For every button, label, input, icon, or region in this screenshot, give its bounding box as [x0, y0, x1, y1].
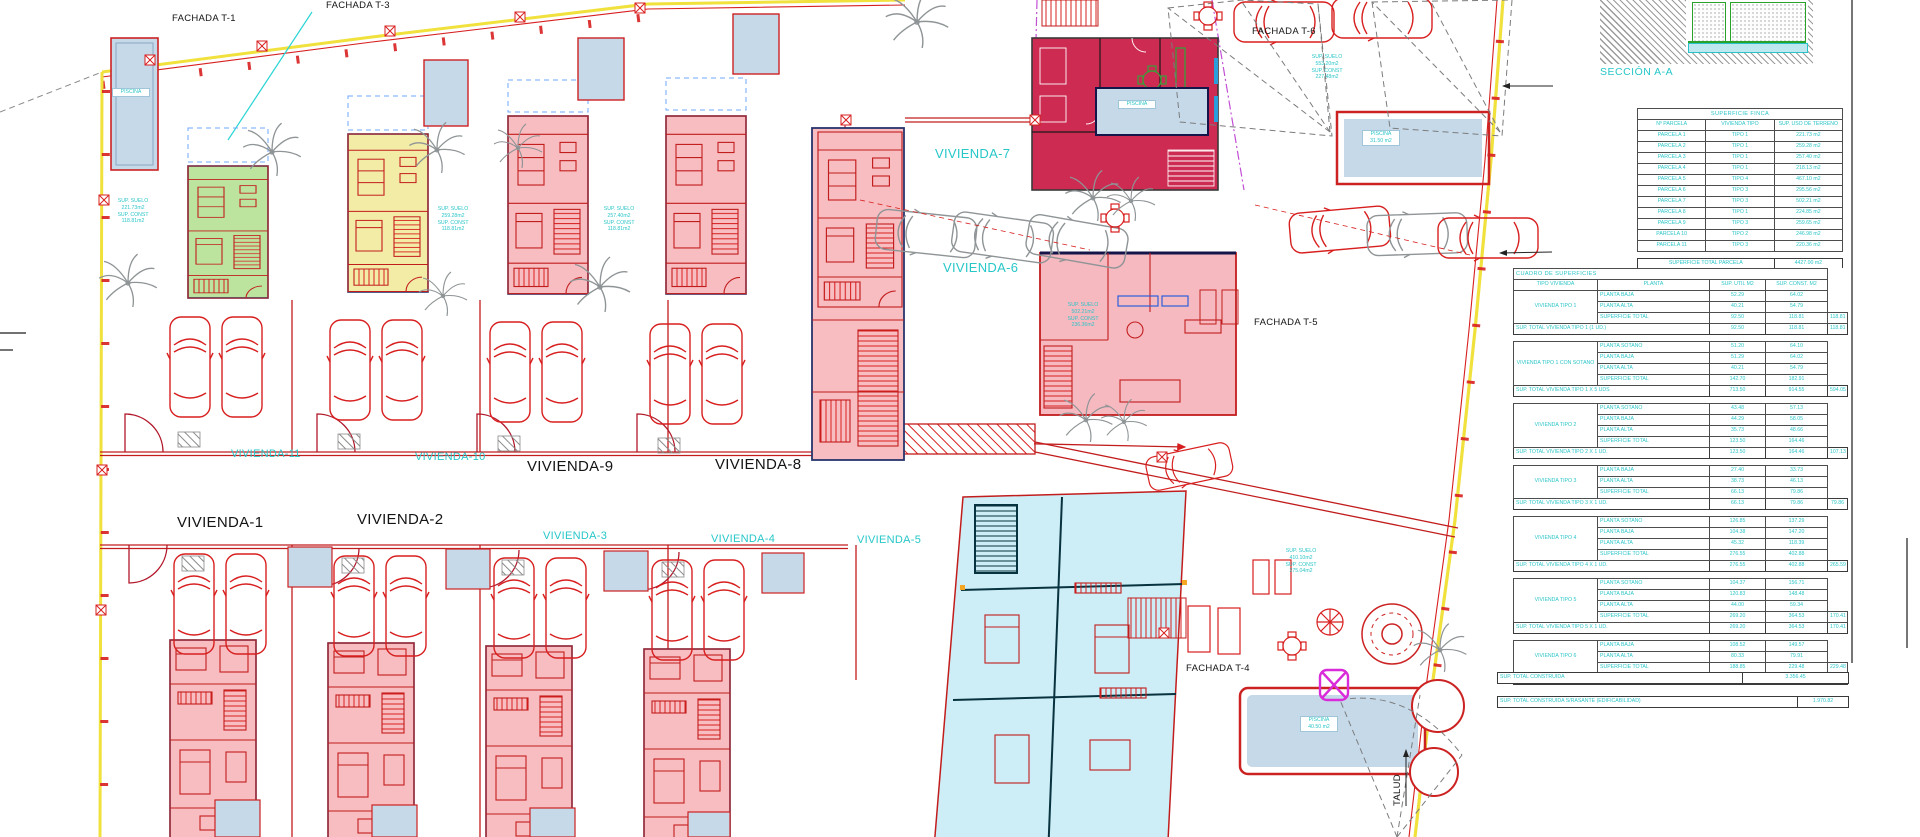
table-cell: 259.65 m2 [1774, 219, 1842, 230]
table-cell: 79.86 [1766, 499, 1828, 510]
table-row: VIVIENDA TIPO 1 CON SOTANOPLANTA SOTANO5… [1514, 342, 1848, 353]
table-row: VIVIENDA TIPO 3PLANTA BAJA27.4033.73 [1514, 466, 1848, 477]
column-header: Nº PARCELA [1638, 120, 1706, 131]
table-cell: TIPO 3 [1706, 186, 1774, 197]
planta-cell: SUPERFICIE TOTAL [1598, 313, 1710, 324]
planta-cell: SUPERFICIE TOTAL [1598, 488, 1710, 499]
plan-annotation: SUP. SUELO553.20m2SUP. CONST227.48m2 [1298, 54, 1356, 81]
label-v11: VIVIENDA-11 [231, 448, 301, 460]
annotation-line: SUP. SUELO [1054, 302, 1112, 309]
table-cell: 402.88 [1766, 561, 1828, 572]
table-cell: 246.98 m2 [1774, 230, 1842, 241]
table-row: PARCELA 7TIPO 3502.21 m2 [1638, 197, 1843, 208]
concrete-block [1730, 2, 1806, 42]
table-cell: 120.83 [1710, 590, 1766, 601]
annotation-line: SUP. SUELO [1272, 548, 1330, 555]
label-v1: VIVIENDA-1 [177, 514, 263, 531]
edif-cell [1828, 652, 1848, 663]
plan-annotation: PISCINA40.50 m2 [1300, 716, 1338, 732]
unit-t5 [1040, 253, 1238, 415]
table-cell: TIPO 1 [1706, 164, 1774, 175]
planta-cell: SUPERFICIE TOTAL [1598, 437, 1710, 448]
annotation-line: PISCINA [114, 89, 148, 96]
table-spacer [1514, 335, 1848, 342]
total-label: SUP. TOTAL VIVIENDA TIPO 1 X 5 UDS [1514, 386, 1710, 397]
label-fachada-t6: FACHADA T-6 [1252, 26, 1316, 37]
table-row: VIVIENDA TIPO 4PLANTA SOTANO126.85137.29 [1514, 517, 1848, 528]
label-fachada-t3: FACHADA T-3 [326, 0, 390, 11]
label-v6: VIVIENDA-6 [943, 260, 1018, 275]
table-row: PARCELA 8TIPO 1224.85 m2 [1638, 208, 1843, 219]
edif-cell [1828, 539, 1848, 550]
table-cell: PARCELA 10 [1638, 230, 1706, 241]
table-cell: PARCELA 2 [1638, 142, 1706, 153]
table-cell: 269.20 [1710, 612, 1766, 623]
table-cell: 40.21 [1710, 364, 1766, 375]
table-row: VIVIENDA TIPO 5PLANTA SOTANO104.37156.71 [1514, 579, 1848, 590]
edif-cell [1828, 353, 1848, 364]
table-cell: 79.86 [1766, 488, 1828, 499]
table-cell: 57.13 [1766, 404, 1828, 415]
edif-cell [1828, 291, 1848, 302]
tipo-cell: VIVIENDA TIPO 4 [1514, 517, 1598, 561]
table-cell: 64.02 [1766, 353, 1828, 364]
total-label: SUP. TOTAL VIVIENDA TIPO 5 X 1 UD. [1514, 623, 1710, 634]
edif-cell [1828, 415, 1848, 426]
annotation-line: SUP. CONST [1054, 316, 1112, 323]
summary-row-table: SUP. TOTAL CONSTRUIDA3.356.45 [1497, 672, 1849, 684]
table-cell [1514, 685, 1848, 692]
table-header-row: Nº PARCELAVIVIENDA TIPOSUP. USO DE TERRE… [1638, 120, 1843, 131]
table-total-row: SUP. TOTAL VIVIENDA TIPO 1 X 5 UDS713.50… [1514, 386, 1848, 397]
planta-cell: PLANTA BAJA [1598, 528, 1710, 539]
base-layer [1688, 43, 1808, 53]
table-title-row: CUADRO DE SUPERFICIES [1514, 269, 1848, 280]
table-cell [1514, 510, 1848, 517]
table-cell: 59.34 [1766, 601, 1828, 612]
tipo-cell: VIVIENDA TIPO 6 [1514, 641, 1598, 674]
tipo-cell: VIVIENDA TIPO 5 [1514, 579, 1598, 623]
table-total-row: SUP. TOTAL VIVIENDA TIPO 5 X 1 UD.269.20… [1514, 623, 1848, 634]
column-header: VIVIENDA TIPO [1706, 120, 1774, 131]
table-row: PARCELA 2TIPO 1259.28 m2 [1638, 142, 1843, 153]
planta-cell: PLANTA ALTA [1598, 426, 1710, 437]
table-cell: 713.50 [1710, 386, 1766, 397]
label-v5: VIVIENDA-5 [857, 534, 921, 546]
summary-row: SUP. TOTAL CONSTRUIDA3.356.45 [1498, 673, 1849, 684]
table-cell: 123.50 [1710, 448, 1766, 459]
planta-cell: SUPERFICIE TOTAL [1598, 612, 1710, 623]
table-row: VIVIENDA TIPO 2PLANTA SOTANO43.4857.13 [1514, 404, 1848, 415]
table-spacer [1514, 459, 1848, 466]
planta-cell: PLANTA SOTANO [1598, 342, 1710, 353]
edif-cell [1828, 579, 1848, 590]
summary-value: 3.356.45 [1743, 673, 1849, 684]
table-spacer [1514, 510, 1848, 517]
table-cell: 182.91 [1766, 375, 1828, 386]
table-title: SUPERFICIE FINCA [1638, 109, 1843, 120]
table-cell: PARCELA 8 [1638, 208, 1706, 219]
column-header: SUP. CONST. M2 [1766, 280, 1828, 291]
total-label: SUP. TOTAL VIVIENDA TIPO 3 X 1 UD. [1514, 499, 1710, 510]
planta-cell: PLANTA ALTA [1598, 477, 1710, 488]
annotation-line: 31.50 m2 [1364, 138, 1398, 145]
annotation-line: SUP. CONST [1272, 562, 1330, 569]
concrete-block [1692, 2, 1726, 42]
table-cell: TIPO 2 [1706, 230, 1774, 241]
summary-label: SUP. TOTAL CONSTRUIDA S/RASANTE (EDIFICA… [1498, 697, 1798, 708]
edif-cell [1828, 404, 1848, 415]
label-v10: VIVIENDA-10 [415, 451, 486, 463]
table-row: PARCELA 10TIPO 2246.98 m2 [1638, 230, 1843, 241]
annotation-line: 227.48m2 [1298, 74, 1356, 81]
site-plan-sheet: FACHADA T-1FACHADA T-3FACHADA T-6FACHADA… [0, 0, 1920, 837]
label-v2: VIVIENDA-2 [357, 511, 443, 528]
table-cell: 142.70 [1710, 375, 1766, 386]
table-row: PARCELA 5TIPO 4467.10 m2 [1638, 175, 1843, 186]
edif-cell [1828, 437, 1848, 448]
table-cell: 364.53 [1766, 623, 1828, 634]
table-cell: PARCELA 11 [1638, 241, 1706, 252]
edif-cell [1828, 477, 1848, 488]
table-spacer [1514, 397, 1848, 404]
table-spacer [1514, 685, 1848, 692]
edif-cell [1828, 601, 1848, 612]
spa-circle [1362, 604, 1422, 664]
table-cell: 502.21 m2 [1774, 197, 1842, 208]
table-cell: 402.88 [1766, 550, 1828, 561]
annotation-line: 118.81m2 [590, 226, 648, 233]
summary-row-table: SUP. TOTAL CONSTRUIDA S/RASANTE (EDIFICA… [1497, 696, 1849, 708]
tipo-cell: VIVIENDA TIPO 3 [1514, 466, 1598, 499]
edif-cell [1828, 342, 1848, 353]
planta-cell: PLANTA ALTA [1598, 652, 1710, 663]
table-row: PARCELA 9TIPO 3259.65 m2 [1638, 219, 1843, 230]
plan-annotation: SUP. SUELO221.73m2SUP. CONST118.81m2 [104, 198, 162, 225]
table-cell: 52.29 [1710, 291, 1766, 302]
annotation-line: 118.81m2 [104, 218, 162, 225]
annotation-line: PISCINA [1302, 717, 1336, 724]
column-header: SUP. USO DE TERRENO [1774, 120, 1842, 131]
label-v8: VIVIENDA-8 [715, 456, 801, 473]
table-cell: 147.20 [1766, 528, 1828, 539]
planta-cell: PLANTA ALTA [1598, 302, 1710, 313]
plan-annotation: PISCINA31.50 m2 [1362, 130, 1400, 146]
table-cell: PARCELA 3 [1638, 153, 1706, 164]
table-title: CUADRO DE SUPERFICIES [1514, 269, 1828, 280]
table-cell: 79.91 [1766, 652, 1828, 663]
table-cell: 149.57 [1766, 641, 1828, 652]
edif-cell [1828, 528, 1848, 539]
table-cell: 220.36 m2 [1774, 241, 1842, 252]
table-cell: 467.10 m2 [1774, 175, 1842, 186]
summary-label: SUP. TOTAL CONSTRUIDA [1498, 673, 1743, 684]
table-row: PARCELA 11TIPO 3220.36 m2 [1638, 241, 1843, 252]
table-cell: 40.21 [1710, 302, 1766, 313]
table-cell: 38.73 [1710, 477, 1766, 488]
cuadro-superficies-table: CUADRO DE SUPERFICIESTIPO VIVIENDAPLANTA… [1513, 268, 1848, 691]
top-units [188, 78, 904, 460]
table-total-row: SUP. TOTAL VIVIENDA TIPO 3 X 1 UD.66.137… [1514, 499, 1848, 510]
annotation-line: 118.81m2 [424, 226, 482, 233]
planta-cell: SUPERFICIE TOTAL [1598, 550, 1710, 561]
annotation-line: 221.73m2 [104, 205, 162, 212]
column-header: PLANTA [1598, 280, 1710, 291]
summary-value: 1.970.82 [1798, 697, 1849, 708]
table-cell: 46.13 [1766, 477, 1828, 488]
annotation-line: SUP. CONST [1298, 68, 1356, 75]
table-cell: 118.81 [1766, 324, 1828, 335]
table-row: PARCELA 6TIPO 3295.56 m2 [1638, 186, 1843, 197]
unit-cyan [933, 491, 1187, 837]
annotation-line: 257.40m2 [590, 213, 648, 220]
edif-cell [1828, 466, 1848, 477]
section-aa-label: SECCIÓN A-A [1600, 66, 1673, 78]
planta-cell: PLANTA BAJA [1598, 641, 1710, 652]
table-cell: 64.10 [1766, 342, 1828, 353]
table-spacer [1638, 252, 1843, 259]
table-cell: 118.81 [1766, 313, 1828, 324]
table-cell: TIPO 1 [1706, 208, 1774, 219]
annotation-line: SUP. CONST [424, 220, 482, 227]
table-row: VIVIENDA TIPO 1PLANTA BAJA52.2964.02 [1514, 291, 1848, 302]
planta-cell: PLANTA SOTANO [1598, 517, 1710, 528]
edif-cell: 170.41 [1828, 623, 1848, 634]
table-cell: 123.50 [1710, 437, 1766, 448]
table-cell: 295.56 m2 [1774, 186, 1842, 197]
annotation-line: SUP. SUELO [590, 206, 648, 213]
table-cell: 104.37 [1710, 579, 1766, 590]
table-cell: 48.66 [1766, 426, 1828, 437]
table-cell: 269.20 [1710, 623, 1766, 634]
annotation-line: 275.04m2 [1272, 568, 1330, 575]
edif-cell [1828, 375, 1848, 386]
annotation-line: 502.21m2 [1054, 309, 1112, 316]
annotation-line: PISCINA [1120, 101, 1154, 108]
annotation-line: SUP. CONST [104, 212, 162, 219]
table-cell: 218.13 m2 [1774, 164, 1842, 175]
annotation-line: SUP. SUELO [1298, 54, 1356, 61]
annotation-line: PISCINA [1364, 131, 1398, 138]
table-cell: 92.50 [1710, 313, 1766, 324]
plan-annotation: SUP. SUELO257.40m2SUP. CONST118.81m2 [590, 206, 648, 233]
label-v7: VIVIENDA-7 [935, 146, 1010, 161]
table-cell: PARCELA 1 [1638, 131, 1706, 142]
table-cell: 92.50 [1710, 324, 1766, 335]
table-cell: TIPO 3 [1706, 241, 1774, 252]
table-cell [1514, 572, 1848, 579]
table-total-row: SUP. TOTAL VIVIENDA TIPO 2 X 1 UD.123.50… [1514, 448, 1848, 459]
planta-cell: PLANTA BAJA [1598, 590, 1710, 601]
table-cell: 276.55 [1710, 550, 1766, 561]
table-cell: 364.53 [1766, 612, 1828, 623]
table-total-row: SUP. TOTAL VIVIENDA TIPO 4 X 1 UD.276.55… [1514, 561, 1848, 572]
pools [111, 14, 1489, 837]
total-label: SUP. TOTAL VIVIENDA TIPO 1 (1 UD.) [1514, 324, 1710, 335]
table-cell: 35.73 [1710, 426, 1766, 437]
tipo-cell: VIVIENDA TIPO 2 [1514, 404, 1598, 448]
table-cell: 66.13 [1710, 488, 1766, 499]
table-cell: 259.28 m2 [1774, 142, 1842, 153]
table-cell: 914.55 [1766, 386, 1828, 397]
label-fachada-t1: FACHADA T-1 [172, 13, 236, 24]
annotation-line: SUP. CONST [590, 220, 648, 227]
table-row: VIVIENDA TIPO 6PLANTA BAJA108.52149.57 [1514, 641, 1848, 652]
table-title-row: SUPERFICIE FINCA [1638, 109, 1843, 120]
table-cell: 80.33 [1710, 652, 1766, 663]
edif-cell [1828, 590, 1848, 601]
table-cell: PARCELA 7 [1638, 197, 1706, 208]
table-cell: 118.39 [1766, 539, 1828, 550]
label-fachada-t4: FACHADA T-4 [1186, 663, 1250, 674]
edif-cell: 170.41 [1828, 612, 1848, 623]
table-cell: 164.46 [1766, 448, 1828, 459]
summary-row: SUP. TOTAL CONSTRUIDA S/RASANTE (EDIFICA… [1498, 697, 1849, 708]
annotation-line: 40.50 m2 [1302, 724, 1336, 731]
table-cell: 64.02 [1766, 291, 1828, 302]
annotation-line: SUP. SUELO [104, 198, 162, 205]
edif-cell: 107.13 [1828, 448, 1848, 459]
table-cell: 137.29 [1766, 517, 1828, 528]
edif-cell [1828, 517, 1848, 528]
pergola-grid-top [1042, 0, 1098, 26]
plan-annotation: SUP. SUELO410.10m2SUP. CONST275.04m2 [1272, 548, 1330, 575]
table-cell: 221.73 m2 [1774, 131, 1842, 142]
edif-cell: 79.86 [1828, 499, 1848, 510]
planta-cell: PLANTA ALTA [1598, 539, 1710, 550]
table-cell: 54.79 [1766, 302, 1828, 313]
total-label: SUP. TOTAL VIVIENDA TIPO 2 X 1 UD. [1514, 448, 1710, 459]
label-talud: TALUD [1392, 774, 1403, 806]
table-row: PARCELA 3TIPO 1257.40 m2 [1638, 153, 1843, 164]
table-cell [1638, 252, 1843, 259]
table-header-row: TIPO VIVIENDAPLANTASUP. UTIL M2SUP. CONS… [1514, 280, 1848, 291]
table-cell: 33.73 [1766, 466, 1828, 477]
annotation-line: SUP. SUELO [424, 206, 482, 213]
edif-cell [1828, 426, 1848, 437]
planta-cell: PLANTA ALTA [1598, 364, 1710, 375]
table-cell: 276.55 [1710, 561, 1766, 572]
table-cell: TIPO 1 [1706, 131, 1774, 142]
table-total-row: SUP. TOTAL VIVIENDA TIPO 1 (1 UD.)92.501… [1514, 324, 1848, 335]
table-cell [1514, 634, 1848, 641]
planta-cell: PLANTA ALTA [1598, 601, 1710, 612]
tipo-cell: VIVIENDA TIPO 1 [1514, 291, 1598, 324]
table-cell: PARCELA 9 [1638, 219, 1706, 230]
table-cell: 54.79 [1766, 364, 1828, 375]
edif-cell: 118.81 [1828, 313, 1848, 324]
table-cell: 44.29 [1710, 415, 1766, 426]
edif-cell [1828, 488, 1848, 499]
table-cell [1514, 397, 1848, 404]
annotation-line: 553.20m2 [1298, 61, 1356, 68]
table-cell: 164.46 [1766, 437, 1828, 448]
planta-cell: PLANTA BAJA [1598, 466, 1710, 477]
table-cell: 58.05 [1766, 415, 1828, 426]
table-cell: 51.20 [1710, 342, 1766, 353]
edif-cell [1828, 364, 1848, 375]
table-cell: 44.00 [1710, 601, 1766, 612]
edif-cell [1828, 550, 1848, 561]
edif-cell: 265.59 [1828, 561, 1848, 572]
annotation-line: 410.10m2 [1272, 555, 1330, 562]
planta-cell: PLANTA BAJA [1598, 353, 1710, 364]
table-cell: 45.32 [1710, 539, 1766, 550]
table-cell: PARCELA 6 [1638, 186, 1706, 197]
tipo-cell: VIVIENDA TIPO 1 CON SOTANO [1514, 342, 1598, 386]
table-cell: 257.40 m2 [1774, 153, 1842, 164]
table-cell: TIPO 3 [1706, 197, 1774, 208]
table-cell: TIPO 1 [1706, 142, 1774, 153]
table-cell [1828, 280, 1848, 291]
table-cell: 66.13 [1710, 499, 1766, 510]
pergola-grid [1128, 598, 1186, 638]
label-v3: VIVIENDA-3 [543, 530, 607, 542]
table-cell: TIPO 1 [1706, 153, 1774, 164]
table-cell: 224.85 m2 [1774, 208, 1842, 219]
table-cell: 51.29 [1710, 353, 1766, 364]
table-spacer [1514, 572, 1848, 579]
plan-annotation: PISCINA [112, 88, 150, 97]
edif-cell [1828, 641, 1848, 652]
label-fachada-t5: FACHADA T-5 [1254, 317, 1318, 328]
table-cell: PARCELA 4 [1638, 164, 1706, 175]
edif-cell: 118.81 [1828, 324, 1848, 335]
table-cell: TIPO 4 [1706, 175, 1774, 186]
plan-annotation: SUP. SUELO259.28m2SUP. CONST118.81m2 [424, 206, 482, 233]
table-row: PARCELA 4TIPO 1218.13 m2 [1638, 164, 1843, 175]
label-v4: VIVIENDA-4 [711, 533, 775, 545]
label-v9: VIVIENDA-9 [527, 458, 613, 475]
plan-annotation: PISCINA [1118, 100, 1156, 109]
annotation-line: 259.28m2 [424, 213, 482, 220]
total-label: SUP. TOTAL VIVIENDA TIPO 4 X 1 UD. [1514, 561, 1710, 572]
table-cell [1514, 459, 1848, 466]
planta-cell: PLANTA BAJA [1598, 291, 1710, 302]
table-cell: 148.48 [1766, 590, 1828, 601]
planta-cell: PLANTA BAJA [1598, 415, 1710, 426]
planta-cell: SUPERFICIE TOTAL [1598, 375, 1710, 386]
table-cell [1828, 269, 1848, 280]
column-header: SUP. UTIL M2 [1710, 280, 1766, 291]
planta-cell: PLANTA SOTANO [1598, 579, 1710, 590]
table-cell: 126.85 [1710, 517, 1766, 528]
table-cell: 43.48 [1710, 404, 1766, 415]
superficie-finca-table: SUPERFICIE FINCANº PARCELAVIVIENDA TIPOS… [1637, 108, 1843, 270]
table-row: PARCELA 1TIPO 1221.73 m2 [1638, 131, 1843, 142]
column-header: TIPO VIVIENDA [1514, 280, 1598, 291]
table-cell: 108.52 [1710, 641, 1766, 652]
table-cell: 156.71 [1766, 579, 1828, 590]
table-cell [1514, 335, 1848, 342]
table-cell: TIPO 3 [1706, 219, 1774, 230]
section-aa-detail: SECCIÓN A-A [1600, 0, 1813, 84]
annotation-line: 236.36m2 [1054, 322, 1112, 329]
edif-cell: 594.05 [1828, 386, 1848, 397]
edif-cell [1828, 302, 1848, 313]
table-cell: 27.40 [1710, 466, 1766, 477]
planta-cell: PLANTA SOTANO [1598, 404, 1710, 415]
plan-annotation: SUP. SUELO502.21m2SUP. CONST236.36m2 [1054, 302, 1112, 329]
table-spacer [1514, 634, 1848, 641]
table-cell: PARCELA 5 [1638, 175, 1706, 186]
table-cell: 104.38 [1710, 528, 1766, 539]
